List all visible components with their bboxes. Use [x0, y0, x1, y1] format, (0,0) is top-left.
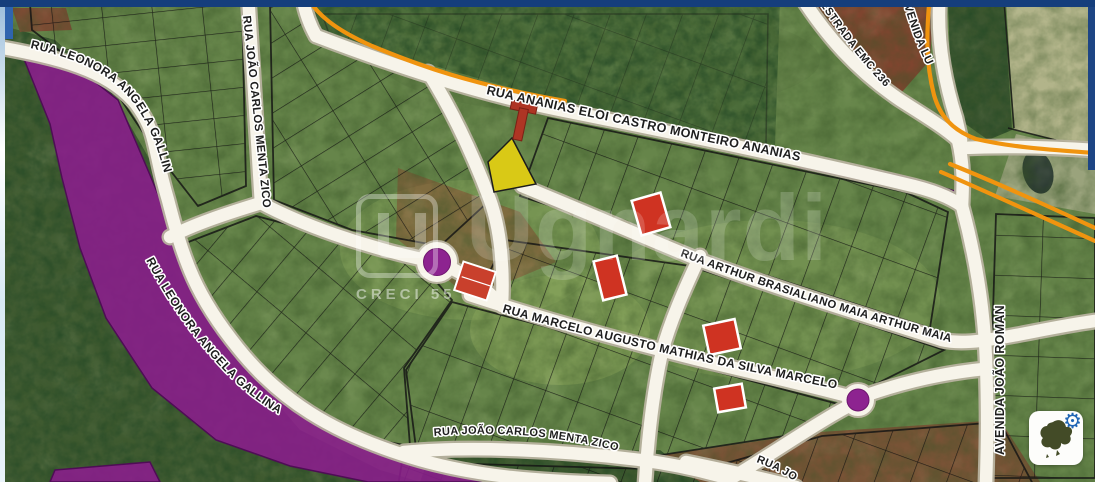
lot-red	[714, 384, 746, 412]
map-viewport[interactable]: RUA LEONORA ANGELA GALLINA RUA LEONORA A…	[0, 0, 1095, 482]
minimap-widget[interactable]: ⚙	[1029, 411, 1083, 465]
purple-marker	[424, 249, 451, 276]
map-canvas[interactable]: RUA LEONORA ANGELA GALLINA RUA LEONORA A…	[0, 0, 1095, 482]
street-label-joao-roman: AVENIDA JOÃO ROMAN	[992, 305, 1007, 455]
window-left-scroll-strip[interactable]	[0, 7, 5, 482]
window-right-border	[1088, 0, 1095, 170]
window-top-border	[0, 0, 1095, 7]
gear-icon[interactable]: ⚙	[1063, 411, 1082, 432]
purple-marker	[847, 389, 869, 411]
svg-text:AVENIDA JOÃO ROMAN: AVENIDA JOÃO ROMAN	[992, 305, 1007, 455]
lot-red	[703, 319, 741, 355]
